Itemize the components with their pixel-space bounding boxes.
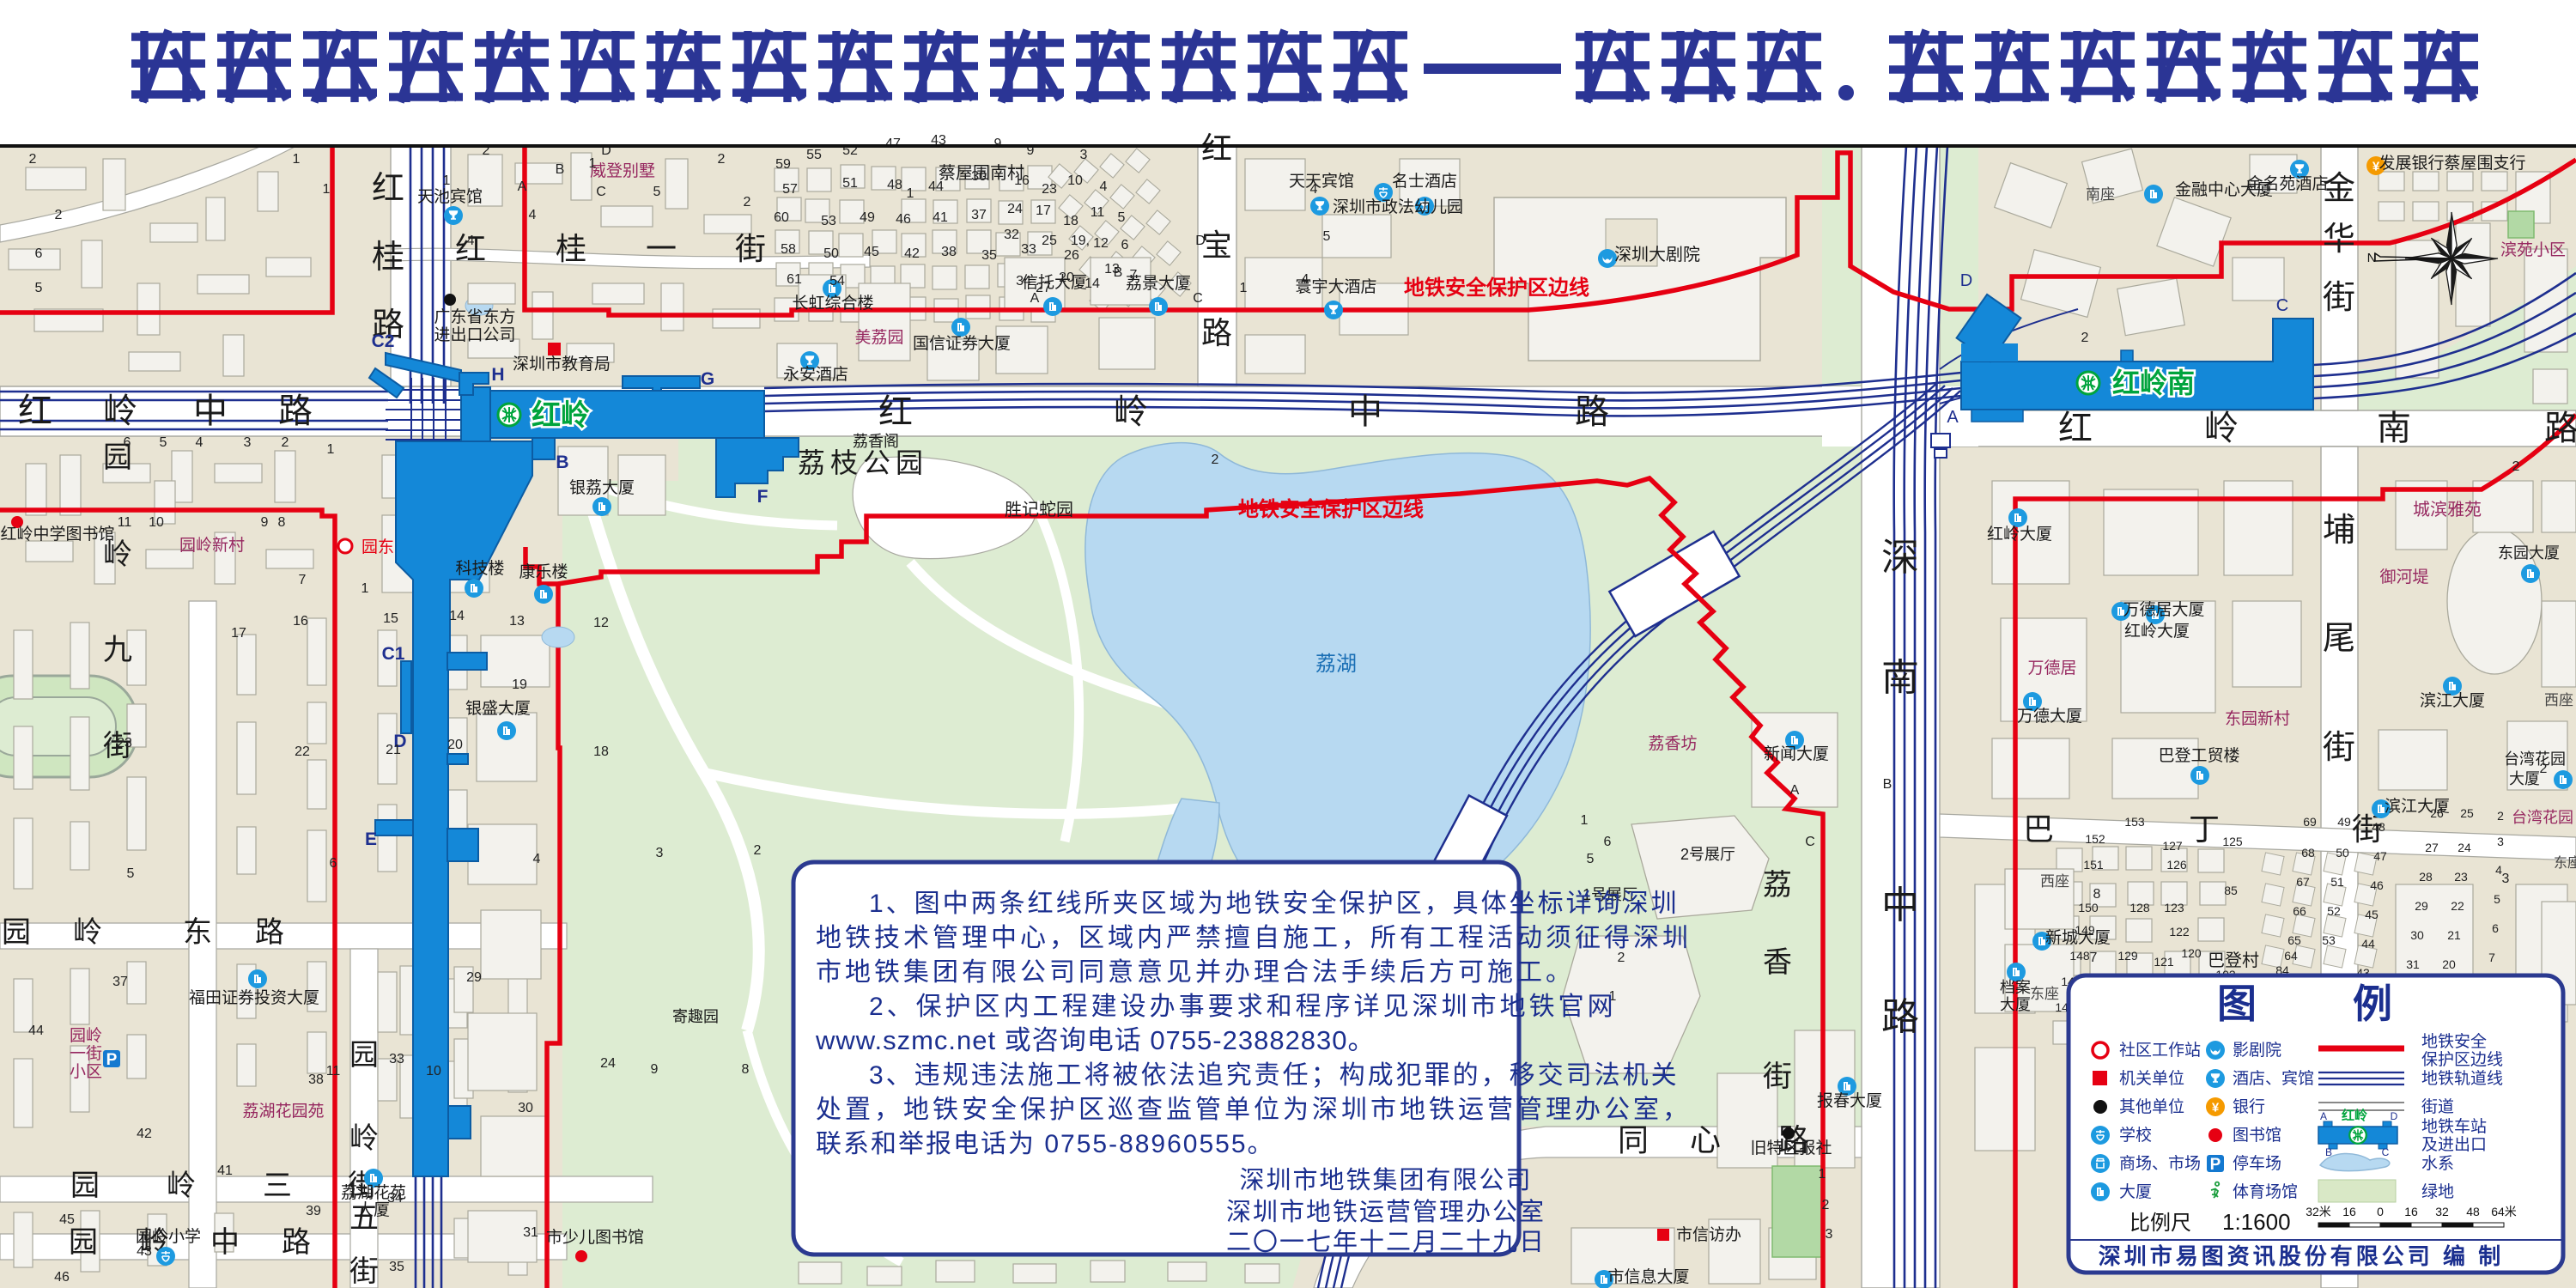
svg-text:33: 33 (389, 1052, 404, 1066)
svg-text:5: 5 (2494, 892, 2500, 906)
svg-text:37: 37 (971, 208, 987, 222)
svg-text:旧特区报社: 旧特区报社 (1750, 1139, 1832, 1157)
svg-text:6: 6 (1121, 238, 1129, 252)
svg-text:24: 24 (600, 1056, 616, 1071)
svg-text:30: 30 (518, 1101, 533, 1115)
svg-text:信托大厦: 信托大厦 (1022, 273, 1087, 292)
svg-text:大厦: 大厦 (2509, 770, 2540, 787)
svg-text:16: 16 (2404, 1205, 2418, 1218)
svg-text:地铁技术管理中心，区域内严禁擅自施工，所有工程活动须征得深圳: 地铁技术管理中心，区域内严禁擅自施工，所有工程活动须征得深圳 (816, 924, 1692, 952)
svg-text:荔香阁: 荔香阁 (853, 433, 899, 450)
svg-text:红岭中学图书馆: 红岭中学图书馆 (0, 525, 114, 544)
svg-text:银盛大厦: 银盛大厦 (465, 699, 531, 718)
svg-text:2: 2 (29, 152, 37, 167)
svg-text:5: 5 (1323, 229, 1331, 244)
svg-text:25: 25 (2460, 806, 2474, 820)
svg-text:4: 4 (1100, 179, 1108, 194)
svg-text:城滨雅苑: 城滨雅苑 (2413, 500, 2482, 519)
svg-text:2: 2 (744, 195, 751, 210)
svg-text:14: 14 (449, 609, 465, 623)
svg-text:126: 126 (2166, 858, 2187, 872)
svg-text:岭: 岭 (2204, 410, 2239, 447)
svg-text:G: G (701, 369, 714, 389)
svg-text:2、保护区内工程建设办事要求和程序详见深圳市地铁官网: 2、保护区内工程建设办事要求和程序详见深圳市地铁官网 (869, 993, 1617, 1021)
svg-text:园东: 园东 (361, 538, 394, 556)
svg-text:61: 61 (787, 272, 802, 287)
svg-text:万德大厦: 万德大厦 (2017, 707, 2082, 726)
svg-text:32: 32 (1004, 228, 1019, 242)
svg-text:12: 12 (1093, 236, 1109, 251)
svg-text:红: 红 (18, 392, 52, 430)
svg-text:联系和举报电话为 0755-88960555。: 联系和举报电话为 0755-88960555。 (816, 1130, 1275, 1158)
svg-text:绿地: 绿地 (2421, 1182, 2454, 1201)
svg-text:24: 24 (2458, 841, 2471, 854)
svg-text:园: 园 (69, 1226, 98, 1259)
svg-text:图: 图 (2217, 981, 2257, 1026)
svg-text:46: 46 (54, 1270, 70, 1285)
svg-text:65: 65 (2287, 933, 2301, 947)
svg-text:7: 7 (2090, 951, 2098, 965)
svg-text:园岭小学: 园岭小学 (136, 1227, 201, 1246)
svg-text:红岭: 红岭 (532, 399, 590, 432)
svg-text:市少儿图书馆: 市少儿图书馆 (546, 1228, 644, 1247)
svg-text:46: 46 (2370, 878, 2384, 892)
svg-text:23: 23 (1042, 182, 1057, 197)
svg-text:32: 32 (2435, 1205, 2449, 1218)
svg-text:44: 44 (928, 179, 944, 194)
svg-text:64: 64 (2284, 949, 2298, 963)
svg-text:128: 128 (2129, 901, 2150, 914)
svg-text:3: 3 (2502, 872, 2510, 886)
svg-text:B: B (556, 162, 565, 177)
svg-text:大厦: 大厦 (2119, 1182, 2152, 1201)
svg-text:33: 33 (1021, 242, 1036, 257)
svg-text:荔香坊: 荔香坊 (1648, 734, 1697, 753)
svg-text:22: 22 (295, 744, 310, 759)
svg-text:51: 51 (2330, 875, 2344, 889)
svg-text:2号展厅: 2号展厅 (1680, 846, 1735, 863)
svg-text:1: 1 (589, 156, 597, 171)
svg-text:园: 园 (349, 1039, 379, 1072)
svg-text:学校: 学校 (2119, 1126, 2152, 1145)
svg-text:A: A (2320, 1110, 2327, 1122)
svg-text:天池宾馆: 天池宾馆 (417, 187, 483, 206)
svg-text:南座: 南座 (2086, 186, 2115, 203)
svg-text:21: 21 (2447, 928, 2461, 942)
svg-text:B: B (1114, 265, 1123, 280)
svg-text:6: 6 (2492, 921, 2499, 935)
svg-text:社区工作站: 社区工作站 (2119, 1041, 2201, 1060)
svg-text:53: 53 (821, 214, 836, 228)
svg-text:长虹综合楼: 长虹综合楼 (792, 294, 873, 313)
svg-text:127: 127 (2162, 839, 2183, 853)
svg-text:4: 4 (1302, 272, 1309, 287)
svg-text:市地铁集团有限公司同意意见并办理合法手续后方可施工。: 市地铁集团有限公司同意意见并办理合法手续后方可施工。 (816, 958, 1575, 987)
svg-text:29: 29 (466, 970, 482, 985)
svg-text:胜记蛇园: 胜记蛇园 (1005, 500, 1073, 519)
svg-text:H: H (491, 365, 504, 385)
svg-text:1: 1 (1240, 281, 1248, 295)
svg-text:2: 2 (718, 152, 726, 167)
svg-text:D: D (1195, 234, 1206, 248)
svg-text:科技楼: 科技楼 (455, 559, 504, 578)
svg-text:41: 41 (217, 1163, 233, 1178)
svg-text:129: 129 (2117, 949, 2138, 963)
svg-text:41: 41 (933, 210, 948, 225)
svg-text:2: 2 (1618, 951, 1625, 965)
svg-text:地铁安全保护区边线: 地铁安全保护区边线 (1238, 497, 1424, 521)
svg-text:地铁安全保护区边线: 地铁安全保护区边线 (1404, 276, 1589, 300)
svg-text:2: 2 (2540, 762, 2548, 776)
svg-text:45: 45 (864, 245, 879, 259)
svg-text:17: 17 (1036, 204, 1051, 218)
svg-text:31: 31 (2406, 957, 2420, 971)
svg-text:9: 9 (261, 515, 269, 530)
svg-text:美荔园: 美荔园 (854, 328, 903, 347)
svg-text:红: 红 (372, 171, 404, 207)
svg-text:69: 69 (2303, 815, 2317, 829)
svg-text:0: 0 (2377, 1205, 2384, 1218)
svg-text:岭: 岭 (167, 1170, 196, 1202)
svg-text:地铁安全: 地铁安全 (2421, 1032, 2487, 1051)
svg-text:6: 6 (1604, 835, 1612, 849)
svg-text:处置，地铁安全保护区巡查监管单位为深圳市地铁运营管理办公室，: 处置，地铁安全保护区巡查监管单位为深圳市地铁运营管理办公室， (816, 1096, 1692, 1124)
svg-text:6: 6 (35, 246, 43, 261)
svg-text:岭: 岭 (1114, 393, 1148, 431)
svg-text:3: 3 (1826, 1227, 1833, 1242)
svg-text:151: 151 (2083, 858, 2104, 872)
svg-text:152: 152 (2085, 832, 2105, 846)
svg-text:A: A (1030, 291, 1040, 306)
svg-text:金名苑酒店: 金名苑酒店 (2246, 174, 2328, 193)
svg-text:深圳市地铁运营管理办公室: 深圳市地铁运营管理办公室 (1226, 1198, 1546, 1226)
svg-text:2: 2 (2497, 809, 2504, 823)
svg-text:30: 30 (971, 169, 987, 184)
svg-text:水系: 水系 (2421, 1154, 2454, 1173)
svg-text:29: 29 (2415, 899, 2428, 913)
svg-text:34: 34 (387, 1191, 403, 1206)
svg-text:大厦: 大厦 (357, 1200, 390, 1219)
svg-text:商场、市场: 商场、市场 (2119, 1154, 2201, 1173)
svg-text:27: 27 (2425, 841, 2439, 854)
svg-text:19: 19 (512, 677, 527, 692)
svg-text:19,: 19, (1071, 234, 1090, 248)
svg-text:国信证券大厦: 国信证券大厦 (913, 334, 1011, 353)
svg-text:荔枝公园: 荔枝公园 (798, 447, 928, 478)
svg-text:岭: 岭 (349, 1122, 379, 1155)
svg-text:一: 一 (646, 231, 677, 266)
svg-text:26: 26 (1064, 248, 1079, 263)
svg-text:南: 南 (2377, 410, 2411, 447)
svg-text:C: C (2276, 296, 2288, 315)
svg-text:一街: 一街 (70, 1044, 102, 1063)
svg-text:53: 53 (2322, 933, 2336, 947)
svg-text:香: 香 (1763, 946, 1792, 979)
svg-text:4: 4 (1310, 182, 1318, 197)
svg-text:巴: 巴 (2023, 811, 2054, 847)
svg-text:42: 42 (137, 1127, 152, 1141)
svg-text:44: 44 (2361, 937, 2375, 951)
svg-text:F: F (757, 487, 769, 507)
svg-text:20: 20 (1059, 270, 1074, 285)
svg-text:园: 园 (70, 1170, 100, 1202)
svg-text:中: 中 (1881, 884, 1919, 927)
svg-text:68: 68 (2301, 846, 2315, 860)
svg-text:11: 11 (118, 515, 132, 530)
svg-text:C: C (1805, 835, 1815, 849)
svg-text:路: 路 (282, 1226, 311, 1259)
svg-text:深圳市易图资讯股份有限公司 编 制: 深圳市易图资讯股份有限公司 编 制 (2099, 1243, 2504, 1269)
svg-text:7: 7 (1130, 268, 1138, 283)
svg-text:57: 57 (782, 182, 798, 197)
svg-text:51: 51 (842, 176, 858, 191)
svg-text:街: 街 (1763, 1060, 1792, 1093)
svg-text:2: 2 (55, 208, 63, 222)
svg-text:4: 4 (196, 435, 204, 450)
svg-text:中: 中 (193, 392, 228, 430)
svg-text:50: 50 (823, 246, 839, 261)
svg-text:122: 122 (2169, 925, 2190, 939)
svg-text:路: 路 (2544, 410, 2576, 447)
svg-text:九: 九 (103, 634, 132, 666)
svg-text:4: 4 (467, 234, 475, 248)
svg-text:1: 1 (907, 186, 914, 201)
svg-text:125: 125 (2222, 835, 2243, 848)
svg-text:2: 2 (1212, 453, 1219, 467)
svg-text:38: 38 (941, 245, 957, 259)
svg-text:1: 1 (1581, 813, 1589, 828)
svg-text:报春大厦: 报春大厦 (1817, 1091, 1882, 1110)
svg-text:8: 8 (742, 1062, 750, 1077)
svg-text:路: 路 (1201, 315, 1232, 350)
svg-text:深圳市政法幼儿园: 深圳市政法幼儿园 (1333, 197, 1463, 216)
svg-text:C: C (596, 185, 606, 199)
svg-text:比例尺: 比例尺 (2129, 1212, 2191, 1235)
svg-text:路: 路 (278, 392, 313, 430)
svg-text:30: 30 (2410, 928, 2424, 942)
svg-text:东座: 东座 (2554, 855, 2576, 871)
svg-text:御河堤: 御河堤 (2379, 568, 2428, 586)
svg-text:宝: 宝 (1201, 228, 1232, 263)
svg-text:街: 街 (735, 231, 766, 266)
svg-text:酒店、宾馆: 酒店、宾馆 (2233, 1069, 2314, 1088)
svg-text:48: 48 (887, 178, 902, 192)
svg-text:滨江大厦: 滨江大厦 (2420, 691, 2485, 710)
svg-text:威登别墅: 威登别墅 (590, 161, 655, 180)
svg-text:34: 34 (1016, 274, 1031, 289)
svg-text:市信访办: 市信访办 (1676, 1225, 1741, 1244)
svg-text:42: 42 (904, 246, 920, 261)
svg-text:桂: 桂 (556, 231, 586, 266)
svg-text:市信息大厦: 市信息大厦 (1607, 1267, 1689, 1286)
svg-text:54: 54 (829, 274, 845, 289)
svg-text:西座: 西座 (2040, 873, 2069, 890)
svg-text:1:1600: 1:1600 (2222, 1209, 2291, 1235)
svg-text:C: C (1193, 291, 1203, 306)
svg-text:保护区边线: 保护区边线 (2421, 1050, 2503, 1069)
svg-text:123: 123 (2164, 901, 2184, 914)
svg-text:23: 23 (2454, 870, 2468, 884)
svg-text:11: 11 (1091, 205, 1105, 220)
svg-text:2: 2 (1822, 1198, 1830, 1212)
svg-text:18: 18 (1063, 214, 1078, 228)
svg-text:深圳市教育局: 深圳市教育局 (513, 355, 611, 374)
svg-text:22: 22 (2451, 899, 2464, 913)
svg-text:街: 街 (2323, 280, 2355, 316)
svg-text:8: 8 (2093, 887, 2101, 902)
svg-text:9: 9 (994, 137, 1002, 151)
svg-text:天天宾馆: 天天宾馆 (1289, 172, 1354, 191)
svg-text:44: 44 (28, 1024, 44, 1038)
svg-text:路: 路 (255, 916, 284, 949)
svg-text:37: 37 (112, 975, 128, 989)
svg-text:B: B (1883, 777, 1893, 792)
svg-text:17: 17 (231, 626, 246, 641)
svg-text:3: 3 (244, 435, 252, 450)
svg-text:1: 1 (1819, 1167, 1826, 1182)
svg-text:49: 49 (2337, 815, 2351, 829)
svg-text:南: 南 (1881, 657, 1919, 699)
svg-text:150: 150 (2078, 901, 2099, 914)
svg-text:尾: 尾 (2323, 621, 2355, 657)
svg-text:E: E (365, 829, 377, 849)
svg-text:55: 55 (806, 148, 822, 162)
svg-text:7: 7 (2488, 951, 2495, 964)
svg-text:5: 5 (127, 866, 135, 881)
svg-text:荔湖: 荔湖 (1315, 653, 1357, 676)
svg-text:荔湖花园苑: 荔湖花园苑 (242, 1102, 324, 1121)
svg-text:新闻大厦: 新闻大厦 (1764, 744, 1829, 763)
svg-text:121: 121 (2154, 955, 2174, 969)
svg-text:D: D (2391, 1110, 2398, 1122)
svg-text:桂: 桂 (372, 240, 404, 276)
svg-text:49: 49 (860, 210, 875, 225)
svg-text:35: 35 (389, 1260, 404, 1274)
svg-text:万德居大厦: 万德居大厦 (2123, 600, 2204, 619)
svg-text:20: 20 (447, 738, 463, 752)
svg-text:深圳市地铁集团有限公司: 深圳市地铁集团有限公司 (1239, 1166, 1532, 1194)
svg-text:心: 心 (1690, 1122, 1721, 1157)
svg-text:52: 52 (2327, 904, 2341, 918)
svg-text:16: 16 (293, 614, 308, 629)
svg-text:红岭大厦: 红岭大厦 (2124, 622, 2190, 641)
svg-text:N: N (2367, 251, 2377, 265)
svg-text:14: 14 (1084, 276, 1100, 291)
svg-text:A: A (518, 179, 527, 194)
svg-text:10: 10 (1067, 173, 1083, 188)
svg-text:红岭大厦: 红岭大厦 (1987, 525, 2052, 544)
svg-text:路: 路 (1575, 393, 1609, 431)
svg-text:50: 50 (2336, 846, 2349, 860)
svg-text:街: 街 (349, 1255, 379, 1288)
svg-text:10: 10 (149, 515, 164, 530)
svg-text:10: 10 (426, 1064, 441, 1078)
svg-text:荔: 荔 (1763, 869, 1792, 902)
svg-text:2: 2 (2081, 331, 2089, 345)
svg-text:C: C (2382, 1146, 2390, 1158)
svg-text:12: 12 (593, 616, 609, 630)
svg-text:2: 2 (754, 843, 762, 858)
svg-text:5: 5 (1587, 852, 1595, 866)
svg-text:11: 11 (326, 1064, 341, 1078)
svg-text:58: 58 (781, 242, 796, 257)
svg-text:深圳大剧院: 深圳大剧院 (1614, 245, 1700, 264)
svg-text:及进出口: 及进出口 (2421, 1135, 2487, 1154)
svg-text:地铁轨道线: 地铁轨道线 (2421, 1069, 2503, 1088)
svg-text:街道: 街道 (2421, 1097, 2454, 1116)
svg-text:48: 48 (2466, 1205, 2480, 1218)
svg-text:三: 三 (263, 1170, 292, 1202)
svg-text:20: 20 (2442, 957, 2456, 971)
svg-text:A: A (1790, 783, 1800, 798)
svg-text:43: 43 (137, 1244, 152, 1259)
svg-text:3: 3 (656, 846, 664, 860)
svg-text:1: 1 (323, 182, 331, 197)
svg-text:图书馆: 图书馆 (2233, 1126, 2281, 1145)
svg-text:21: 21 (386, 743, 401, 757)
svg-text:银荔大厦: 银荔大厦 (569, 478, 635, 497)
svg-text:6: 6 (124, 435, 131, 450)
svg-text:1、图中两条红线所夹区域为地铁安全保护区，具体坐标详询深圳: 1、图中两条红线所夹区域为地铁安全保护区，具体坐标详询深圳 (869, 890, 1680, 918)
svg-text:5: 5 (35, 281, 43, 295)
svg-text:东园新村: 东园新村 (2225, 709, 2290, 728)
svg-text:8: 8 (278, 515, 286, 530)
svg-text:38: 38 (308, 1072, 324, 1087)
svg-text:149: 149 (2075, 923, 2095, 937)
svg-text:7: 7 (299, 573, 307, 587)
svg-text:13: 13 (509, 614, 525, 629)
svg-text:停车场: 停车场 (2233, 1154, 2281, 1173)
svg-text:39: 39 (306, 1204, 321, 1218)
svg-text:3: 3 (1080, 148, 1088, 162)
svg-text:5: 5 (653, 185, 661, 199)
svg-text:滨苑小区: 滨苑小区 (2500, 240, 2566, 259)
svg-text:福田证券投资大厦: 福田证券投资大厦 (189, 988, 319, 1007)
svg-text:47: 47 (885, 137, 901, 151)
svg-text:35: 35 (981, 248, 997, 263)
svg-text:www.szmc.net 或咨询电话 0755-23882: www.szmc.net 或咨询电话 0755-23882830。 (815, 1025, 1376, 1055)
svg-text:1: 1 (293, 152, 301, 167)
svg-text:26: 26 (2430, 806, 2444, 820)
svg-text:5: 5 (1118, 210, 1126, 225)
svg-text:B: B (556, 453, 568, 472)
svg-text:岭: 岭 (73, 916, 102, 949)
svg-text:1: 1 (443, 173, 451, 188)
svg-text:红: 红 (1201, 131, 1232, 166)
svg-text:153: 153 (2124, 815, 2145, 829)
svg-text:46: 46 (896, 212, 911, 227)
svg-text:A: A (1947, 408, 1959, 427)
svg-text:28: 28 (2419, 870, 2433, 884)
svg-text:5: 5 (160, 435, 167, 450)
svg-text:60: 60 (774, 210, 789, 225)
svg-text:4: 4 (529, 208, 537, 222)
svg-text:档案: 档案 (2000, 979, 2031, 996)
svg-text:地铁车站: 地铁车站 (2421, 1117, 2487, 1136)
svg-text:红: 红 (2058, 410, 2093, 447)
svg-text:台湾花园: 台湾花园 (2504, 750, 2566, 768)
svg-text:永安酒店: 永安酒店 (783, 365, 848, 384)
svg-text:体育场馆: 体育场馆 (2233, 1182, 2298, 1201)
svg-text:万德居: 万德居 (2027, 659, 2076, 677)
svg-text:1: 1 (327, 442, 335, 457)
svg-text:路: 路 (1881, 996, 1919, 1038)
svg-text:影剧院: 影剧院 (2233, 1041, 2281, 1060)
svg-text:小区: 小区 (70, 1062, 102, 1081)
svg-text:15: 15 (383, 611, 398, 626)
svg-text:1: 1 (361, 581, 369, 596)
svg-text:9: 9 (651, 1062, 659, 1077)
